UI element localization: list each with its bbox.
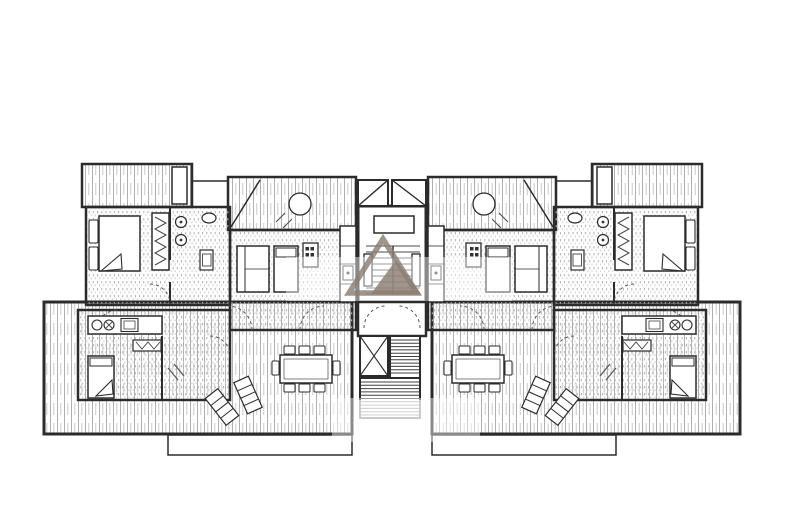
left-wing [44, 164, 356, 455]
bidet-dot [180, 239, 183, 242]
dining-chair [272, 361, 279, 375]
dining-chair [489, 384, 500, 392]
stove-lower [121, 319, 138, 332]
bed-pillow [672, 358, 694, 366]
washbasin [202, 213, 216, 223]
dining-chair [299, 346, 310, 354]
watermark-band [332, 398, 480, 442]
floor-plan-page [0, 0, 800, 531]
dining-chair [489, 346, 500, 354]
toilet-dot [180, 221, 183, 224]
burner [306, 247, 310, 251]
bed-pillow [90, 358, 112, 366]
bed-pillow [89, 220, 98, 243]
bed-pillow [686, 220, 695, 243]
dining-chair [474, 346, 485, 354]
terrace-round-table [289, 193, 311, 215]
dining-chair [314, 384, 325, 392]
sink-round [92, 320, 102, 330]
balcony-planter [597, 167, 612, 204]
washbasin [568, 213, 582, 223]
dining-chair [299, 384, 310, 392]
dining-chair [459, 346, 470, 354]
toilet-dot [602, 221, 605, 224]
burner [470, 247, 474, 251]
terrace-lower-lip [168, 435, 352, 455]
daybed-pillow [488, 248, 508, 257]
bed-pillow [89, 247, 98, 270]
burner [475, 247, 479, 251]
stove-lower [646, 319, 663, 332]
dining-chair [444, 361, 451, 375]
dining-chair [459, 384, 470, 392]
dining-chair [284, 384, 295, 392]
dining-chair [284, 346, 295, 354]
dining-chair [333, 361, 340, 375]
burner [311, 253, 315, 257]
burner [311, 247, 315, 251]
dining-chair [474, 384, 485, 392]
stair-lobby [358, 302, 426, 336]
bidet-dot [602, 239, 605, 242]
balcony-planter [172, 167, 187, 204]
dining-chair [314, 346, 325, 354]
burner [470, 253, 474, 257]
bed-pillow [686, 247, 695, 270]
terrace-round-table [473, 193, 495, 215]
burner [475, 253, 479, 257]
daybed-pillow [276, 248, 296, 257]
sink-round [682, 320, 692, 330]
burner [306, 253, 310, 257]
floor-plan-svg [0, 0, 800, 531]
dining-chair [505, 361, 512, 375]
